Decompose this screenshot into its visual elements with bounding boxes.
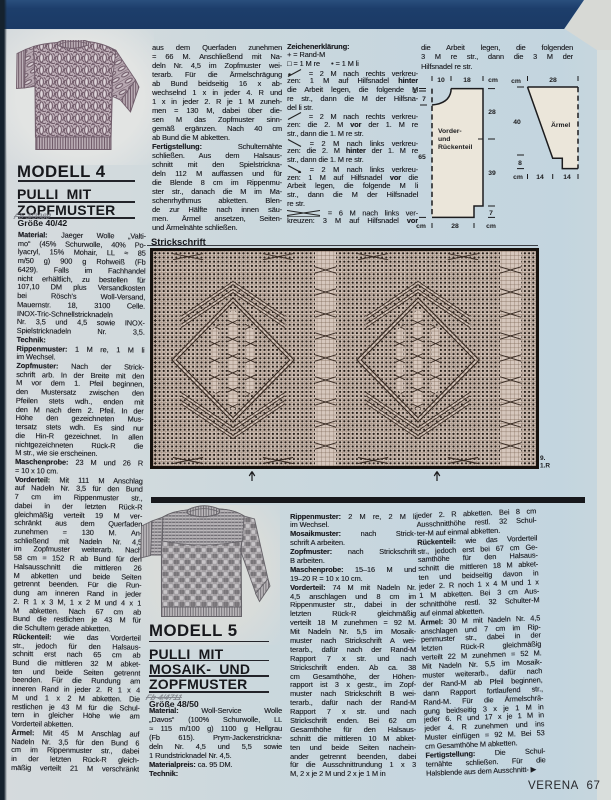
- svg-text:40: 40: [513, 119, 521, 126]
- svg-text:cm: cm: [511, 78, 521, 85]
- svg-text:Vorder-: Vorder-: [438, 128, 462, 135]
- svg-text:8: 8: [518, 160, 522, 167]
- svg-text:14: 14: [563, 174, 571, 181]
- svg-text:10: 10: [437, 77, 445, 84]
- svg-text:2: 2: [413, 88, 417, 95]
- svg-text:39: 39: [488, 170, 496, 177]
- svg-text:cm: cm: [513, 174, 523, 181]
- svg-text:18: 18: [463, 77, 471, 84]
- svg-text:14: 14: [536, 174, 544, 181]
- svg-text:Ärmel: Ärmel: [551, 121, 570, 129]
- svg-text:28: 28: [488, 109, 496, 116]
- svg-text:cm: cm: [486, 223, 496, 230]
- svg-text:und: und: [438, 136, 450, 143]
- svg-text:9.: 9.: [540, 455, 546, 462]
- svg-text:cm: cm: [488, 77, 498, 84]
- svg-text:cm: cm: [416, 223, 426, 230]
- svg-text:7: 7: [422, 96, 426, 103]
- svg-text:7: 7: [489, 210, 493, 217]
- svg-text:65: 65: [418, 154, 426, 161]
- svg-text:28: 28: [451, 223, 459, 230]
- svg-text:28: 28: [549, 77, 557, 84]
- svg-text:1.R: 1.R: [540, 463, 550, 470]
- svg-text:Rückenteil: Rückenteil: [438, 144, 472, 151]
